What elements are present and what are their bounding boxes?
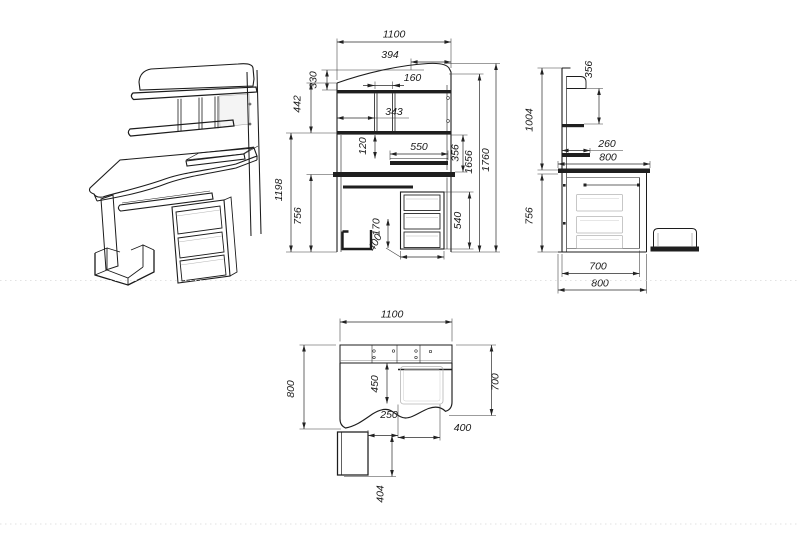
side-drawer-profiles	[577, 195, 623, 249]
side-cpu-stand-profile	[651, 229, 700, 252]
technical-drawing-page: 1100 394 160 343 330 442 1198 756	[0, 0, 800, 533]
dim-front-body-height: 1656	[463, 150, 475, 174]
side-view: 1004 356 260 800 756 700 800	[524, 61, 700, 294]
dim-front-shelf-drop: 120	[357, 137, 369, 155]
dim-side-shelf-depth: 260	[597, 138, 616, 150]
iso-cpu-stand	[95, 245, 154, 285]
plan-cpu-stand	[338, 432, 369, 475]
front-structure	[333, 63, 455, 252]
dim-plan-tray-width: 400	[454, 422, 472, 434]
dim-front-desk-height: 756	[292, 207, 304, 225]
dim-front-stand-height: 170	[371, 218, 383, 236]
dim-front-drawer-block-height: 540	[452, 212, 464, 230]
plan-fastener-holes	[373, 350, 432, 359]
dim-front-overall-height: 1760	[480, 148, 492, 172]
iso-drawer-unit	[172, 197, 237, 283]
dim-side-top-to-shelf: 356	[583, 61, 595, 79]
dim-side-overall-depth: 800	[591, 278, 609, 290]
dim-front-keyboard-shelf-width: 550	[410, 141, 428, 153]
drawing-canvas: 1100 394 160 343 330 442 1198 756	[0, 0, 800, 533]
hutch-dividers	[178, 94, 250, 131]
front-dimensions: 1100 394 160 343 330 442 1198 756	[273, 29, 500, 260]
dim-side-hutch-height: 1004	[524, 108, 536, 132]
dim-plan-stand-protrusion: 404	[375, 485, 387, 503]
plan-dimensions: 1100 800 700 450 250 400 404	[285, 309, 502, 503]
side-dimensions: 1004 356 260 800 756 700 800	[524, 61, 651, 294]
dim-front-upper-right-width: 394	[381, 49, 399, 61]
dim-front-niche-width: 160	[404, 72, 422, 84]
dim-front-overall-width: 1100	[383, 29, 406, 41]
dim-front-compartment-width: 343	[385, 106, 403, 118]
dim-front-shelf-above-desktop: 356	[450, 144, 462, 162]
dim-plan-left-depth: 800	[285, 380, 297, 398]
dim-side-desk-height: 756	[524, 207, 536, 225]
dim-plan-stand-clearance: 250	[379, 409, 398, 421]
dim-plan-recess-depth: 450	[369, 375, 381, 393]
front-view: 1100 394 160 343 330 442 1198 756	[273, 29, 500, 260]
dim-front-top-curve-height: 330	[308, 71, 320, 89]
dim-front-hutch-section-height: 442	[292, 95, 304, 113]
dim-front-upper-structure-height: 1198	[273, 179, 285, 202]
dim-side-desktop-depth: 800	[599, 152, 617, 164]
plan-view: 1100 800 700 450 250 400 404	[285, 309, 502, 503]
dim-plan-right-depth: 700	[490, 373, 502, 391]
front-drawers	[404, 195, 440, 248]
dim-plan-overall-width: 1100	[381, 309, 404, 321]
side-structure	[558, 68, 699, 252]
isometric-view	[90, 64, 262, 285]
dim-side-cabinet-depth: 700	[589, 261, 607, 273]
